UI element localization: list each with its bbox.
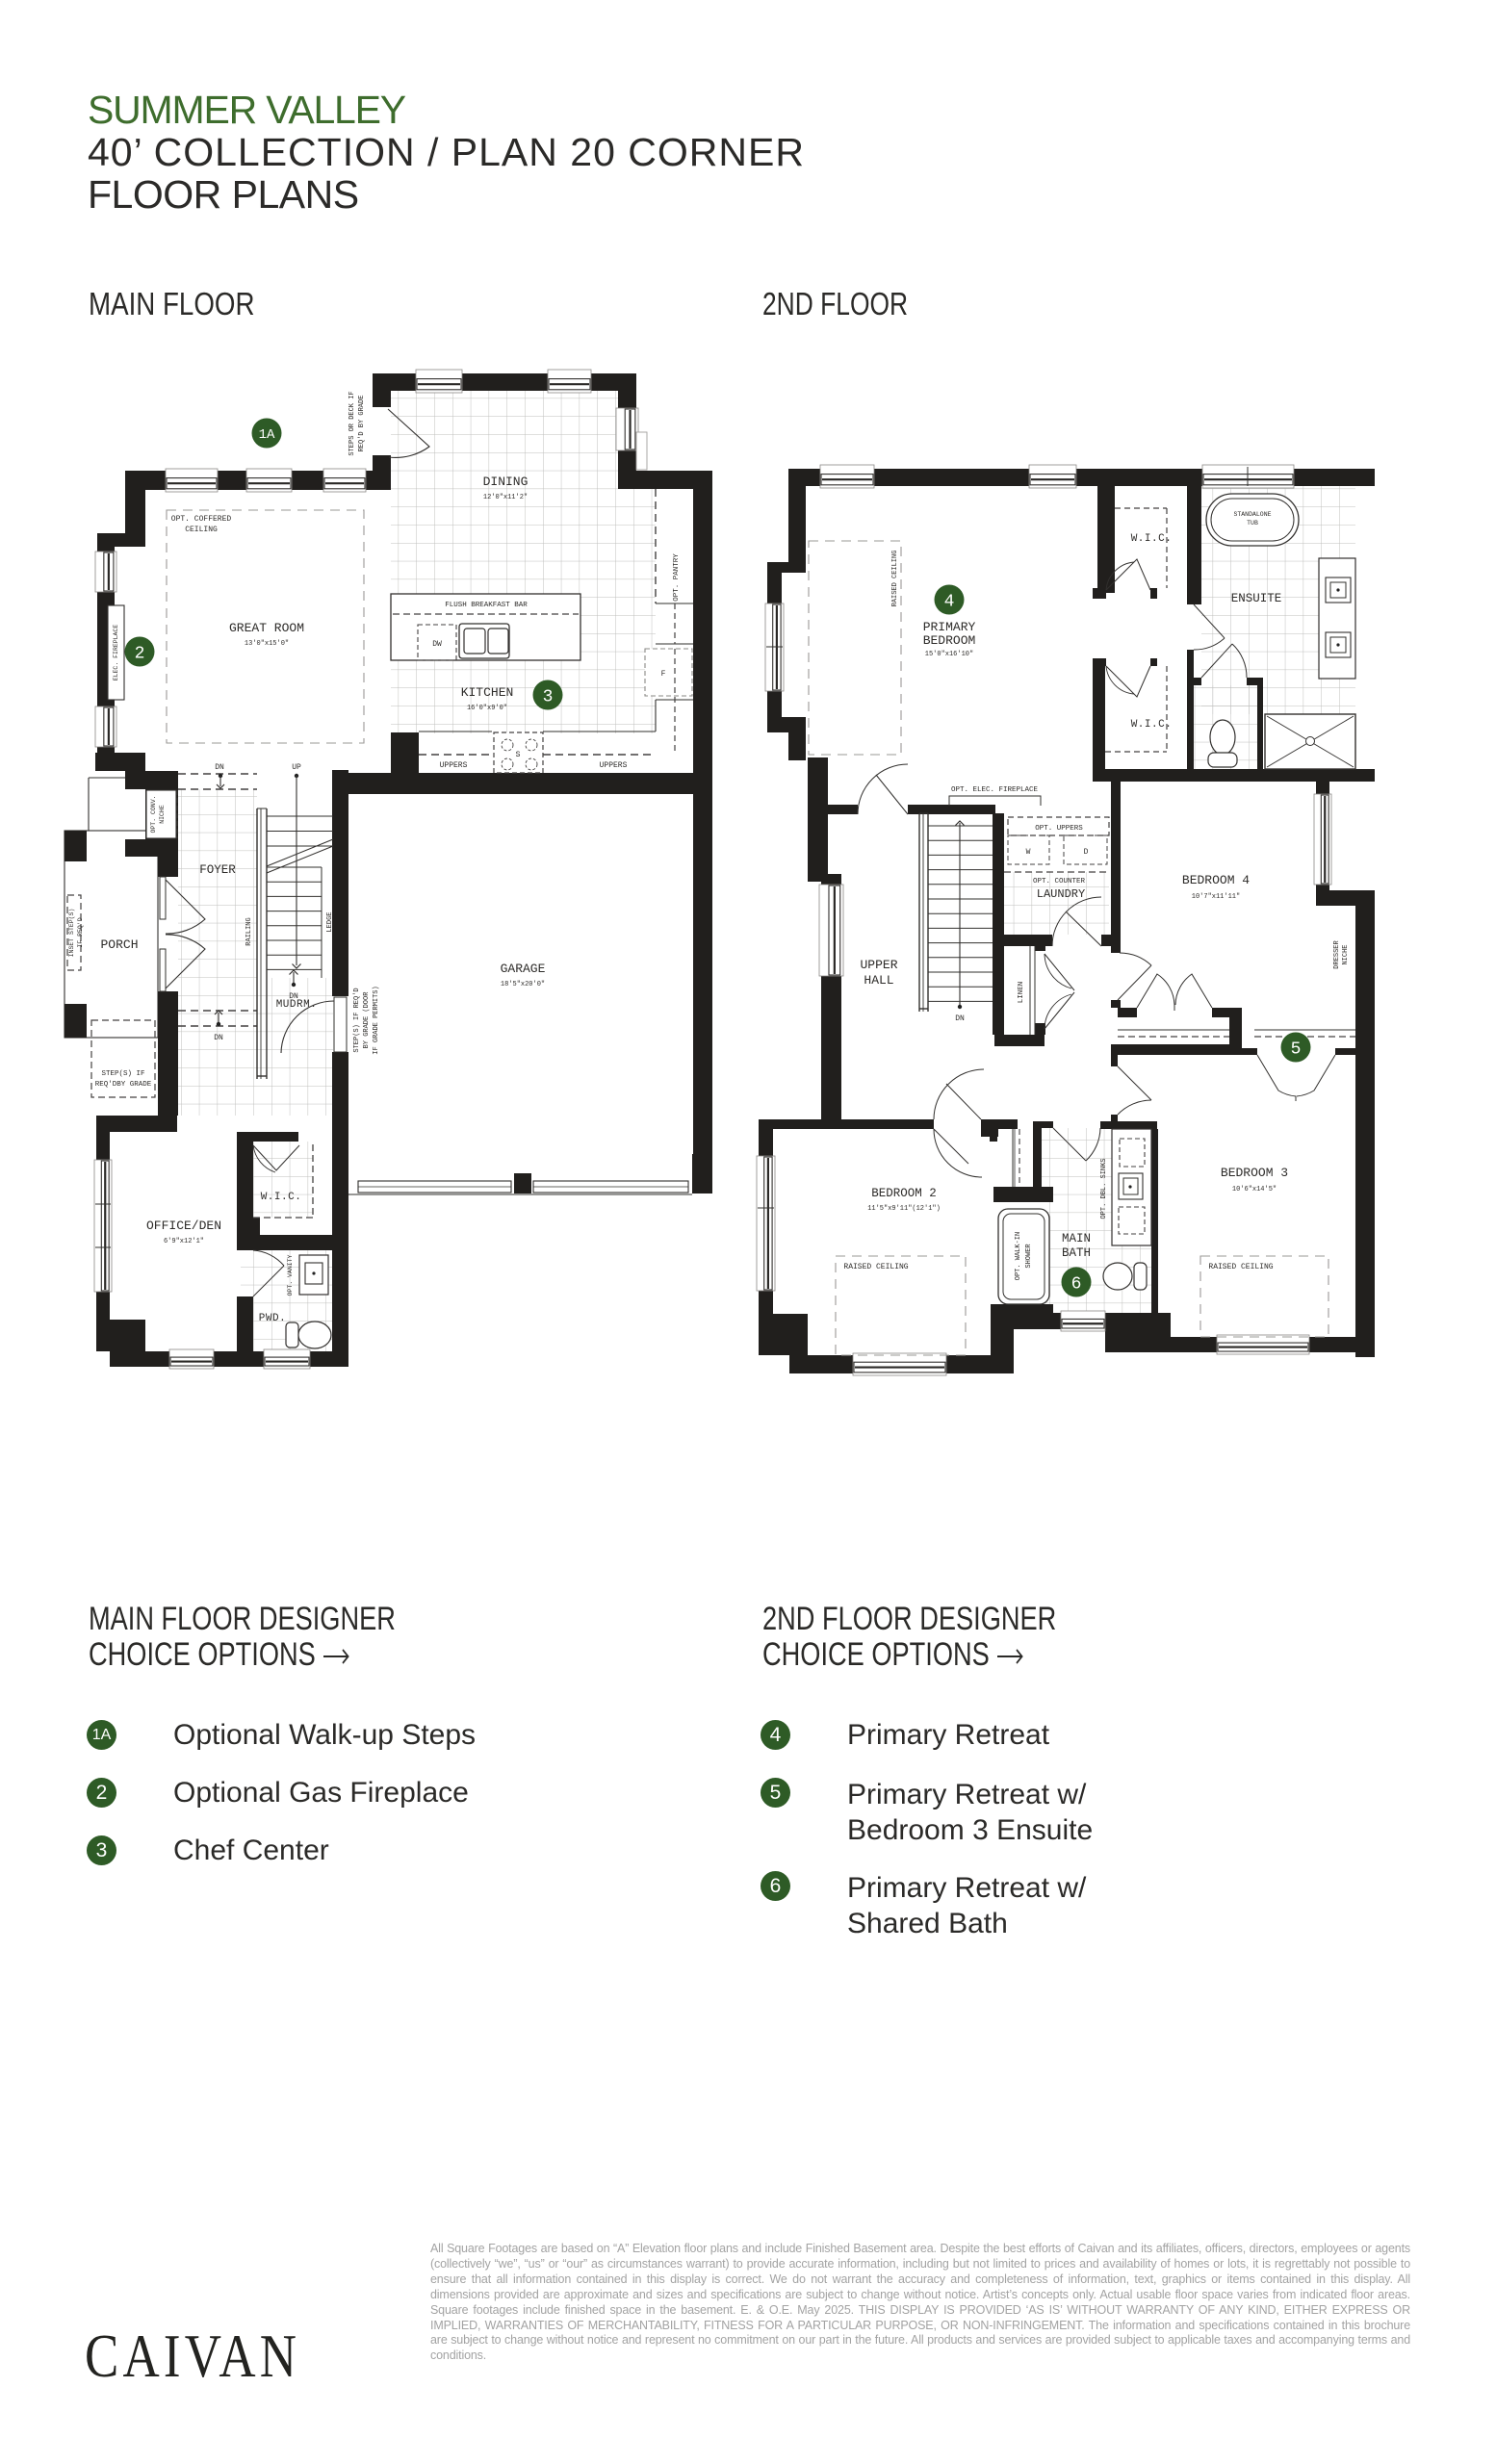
svg-text:BEDROOM: BEDROOM: [923, 633, 976, 648]
svg-text:12'0"x11'2": 12'0"x11'2": [483, 494, 528, 501]
svg-text:LINEN: LINEN: [1018, 982, 1025, 1004]
svg-text:REQ'DBY GRADE: REQ'DBY GRADE: [95, 1081, 152, 1089]
svg-text:LEDGE: LEDGE: [326, 911, 334, 932]
svg-text:ELEC. FIREPLACE: ELEC. FIREPLACE: [113, 625, 119, 681]
svg-text:W: W: [1026, 848, 1031, 857]
svg-text:18'5"x20'0": 18'5"x20'0": [501, 981, 545, 988]
svg-text:STEP(S) IF REQ'D: STEP(S) IF REQ'D: [353, 988, 361, 1052]
svg-text:OPT. CONV.: OPT. CONV.: [150, 795, 157, 833]
svg-text:PWD.: PWD.: [259, 1313, 286, 1324]
svg-text:W.I.C.: W.I.C.: [261, 1192, 302, 1203]
svg-text:3: 3: [543, 687, 554, 706]
svg-text:5: 5: [1291, 1039, 1302, 1059]
svg-text:2: 2: [135, 644, 145, 663]
svg-text:UPPERS: UPPERS: [440, 761, 468, 770]
svg-text:W.I.C.: W.I.C.: [1131, 533, 1173, 545]
svg-text:RAISED CEILING: RAISED CEILING: [891, 551, 899, 607]
svg-text:IF GRADE PERMITS): IF GRADE PERMITS): [373, 986, 380, 1054]
svg-text:10'6"x14'5": 10'6"x14'5": [1232, 1186, 1277, 1193]
svg-text:BEDROOM 3: BEDROOM 3: [1221, 1166, 1288, 1180]
svg-text:HALL: HALL: [864, 973, 893, 988]
svg-text:ENSUITE: ENSUITE: [1231, 592, 1282, 605]
svg-text:DN: DN: [215, 763, 224, 772]
svg-text:OPT. COFFERED: OPT. COFFERED: [171, 515, 232, 524]
svg-text:TUB: TUB: [1247, 520, 1258, 526]
svg-text:11'5"x9'11"(12'1"): 11'5"x9'11"(12'1"): [867, 1205, 941, 1213]
svg-text:6'9"x12'1": 6'9"x12'1": [164, 1238, 204, 1245]
svg-text:OFFICE/DEN: OFFICE/DEN: [146, 1219, 221, 1233]
svg-text:OPT. VANITY: OPT. VANITY: [287, 1254, 294, 1296]
svg-text:NICHE: NICHE: [159, 805, 166, 824]
svg-text:SHOWER: SHOWER: [1025, 1244, 1033, 1269]
svg-text:STEPS OR DECK IF: STEPS OR DECK IF: [348, 391, 356, 455]
svg-text:OPT. UPPERS: OPT. UPPERS: [1035, 825, 1083, 833]
svg-text:RAISED CEILING: RAISED CEILING: [1208, 1263, 1273, 1271]
svg-text:OPT. PANTRY: OPT. PANTRY: [673, 553, 681, 602]
svg-text:OPT. ELEC. FIREPLACE: OPT. ELEC. FIREPLACE: [951, 786, 1039, 794]
svg-text:KITCHEN: KITCHEN: [461, 685, 514, 700]
svg-text:LAUNDRY: LAUNDRY: [1037, 887, 1085, 901]
svg-text:STEP(S) IF: STEP(S) IF: [101, 1070, 144, 1078]
svg-text:CEILING: CEILING: [185, 526, 218, 534]
svg-text:6: 6: [1071, 1274, 1082, 1294]
svg-text:DN: DN: [214, 1034, 223, 1042]
svg-text:DN: DN: [955, 1014, 965, 1023]
svg-text:BEDROOM 4: BEDROOM 4: [1182, 873, 1250, 887]
svg-text:PORCH: PORCH: [100, 937, 138, 952]
svg-text:OPT. COUNTER: OPT. COUNTER: [1033, 878, 1086, 885]
svg-text:DINING: DINING: [483, 475, 529, 489]
svg-text:GREAT ROOM: GREAT ROOM: [229, 621, 304, 635]
svg-text:4: 4: [944, 592, 955, 611]
svg-text:REQ'D BY GRADE: REQ'D BY GRADE: [358, 396, 366, 452]
svg-text:GARAGE: GARAGE: [501, 962, 546, 976]
svg-text:INSET STEP(S): INSET STEP(S): [68, 909, 75, 958]
svg-text:UP: UP: [292, 763, 301, 772]
svg-text:MAIN: MAIN: [1062, 1232, 1091, 1245]
svg-text:13'0"x15'0": 13'0"x15'0": [245, 640, 289, 648]
svg-text:BATH: BATH: [1062, 1246, 1091, 1260]
svg-text:OPT. DBL. SINKS: OPT. DBL. SINKS: [1100, 1158, 1108, 1219]
svg-text:1A: 1A: [259, 427, 275, 443]
svg-text:DRESSER: DRESSER: [1333, 939, 1341, 968]
svg-text:F: F: [661, 670, 666, 679]
svg-text:FOYER: FOYER: [199, 863, 236, 877]
svg-text:OPT. WALK-IN: OPT. WALK-IN: [1015, 1232, 1022, 1280]
svg-text:16'0"x9'0": 16'0"x9'0": [467, 705, 507, 712]
svg-text:STANDALONE: STANDALONE: [1233, 511, 1271, 518]
svg-text:UPPER: UPPER: [860, 958, 897, 972]
svg-text:FLUSH BREAKFAST BAR: FLUSH BREAKFAST BAR: [445, 602, 528, 609]
svg-text:S: S: [516, 751, 521, 759]
svg-text:RAILING: RAILING: [245, 917, 253, 945]
svg-text:D: D: [1084, 848, 1089, 857]
svg-text:BY GRADE (DOOR: BY GRADE (DOOR: [363, 991, 371, 1049]
svg-text:W.I.C.: W.I.C.: [1131, 719, 1173, 731]
svg-text:IF REQ'D: IF REQ'D: [77, 917, 84, 947]
svg-text:BEDROOM 2: BEDROOM 2: [871, 1187, 937, 1200]
svg-text:RAISED CEILING: RAISED CEILING: [843, 1263, 908, 1271]
svg-text:DW: DW: [432, 640, 442, 649]
svg-text:15'0"x16'10": 15'0"x16'10": [925, 651, 973, 658]
svg-text:NICHE: NICHE: [1342, 944, 1350, 964]
svg-text:MUDRM.: MUDRM.: [276, 999, 318, 1011]
svg-text:10'7"x11'11": 10'7"x11'11": [1192, 893, 1240, 901]
svg-text:PRIMARY: PRIMARY: [923, 620, 976, 634]
svg-text:UPPERS: UPPERS: [600, 761, 628, 770]
